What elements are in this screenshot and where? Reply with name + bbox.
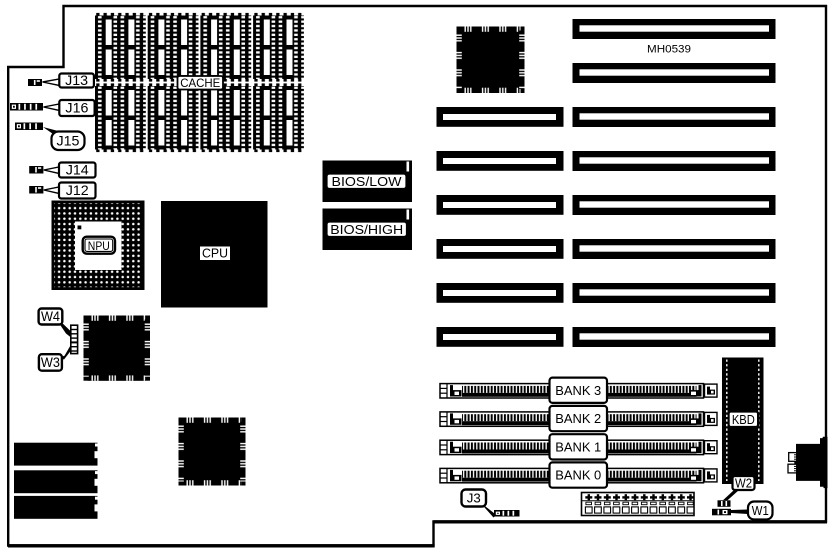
svg-text:BIOS/HIGH: BIOS/HIGH	[330, 222, 403, 237]
svg-text:W3: W3	[41, 355, 60, 370]
svg-text:BANK 0: BANK 0	[555, 468, 601, 483]
svg-text:BANK 2: BANK 2	[555, 411, 601, 426]
svg-text:NPU: NPU	[88, 239, 110, 253]
svg-text:BIOS/LOW: BIOS/LOW	[332, 174, 403, 189]
svg-text:W2: W2	[735, 476, 752, 491]
svg-text:J3: J3	[467, 491, 481, 506]
svg-text:J12: J12	[66, 183, 89, 198]
svg-text:CPU: CPU	[202, 247, 228, 261]
svg-text:CACHE: CACHE	[180, 76, 220, 90]
svg-text:KBD: KBD	[732, 412, 755, 427]
svg-text:J16: J16	[65, 101, 88, 116]
svg-text:MH0539: MH0539	[647, 44, 691, 56]
svg-text:W4: W4	[41, 309, 60, 324]
svg-text:W1: W1	[752, 503, 769, 518]
svg-text:J15: J15	[57, 134, 80, 149]
svg-text:J13: J13	[65, 73, 88, 88]
svg-text:BANK 1: BANK 1	[555, 439, 601, 454]
svg-text:J14: J14	[66, 163, 90, 178]
svg-text:BANK 3: BANK 3	[555, 383, 601, 398]
